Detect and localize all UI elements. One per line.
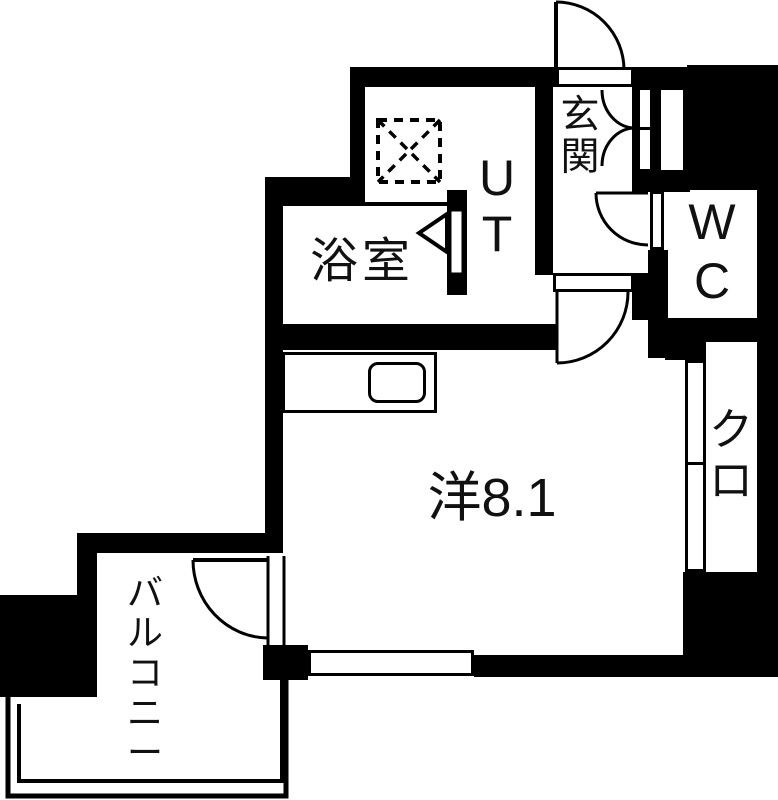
wall-bathroom-top (265, 177, 365, 203)
room-label-entrance: 玄関 (560, 95, 599, 179)
wall-ut-genkan-divider (535, 85, 553, 275)
closet-door-panel-upper (685, 360, 706, 465)
shoe-cabinet-doors-icon (602, 90, 635, 166)
room-label-balcony: バルコニー (127, 573, 163, 773)
balcony-door-icon (193, 556, 284, 645)
shoe-cabinet-tall (658, 87, 686, 173)
room-label-western-room: 洋8.1 (427, 469, 556, 527)
wall-balcony-top (77, 533, 283, 553)
wall-bottomright-block (683, 572, 778, 677)
closet-door-panel-lower (685, 462, 706, 572)
shoe-cabinet-lower (637, 127, 653, 172)
bathroom-door-icon (419, 214, 447, 252)
room-label-utility: UT (479, 150, 515, 262)
kitchen-sink (368, 362, 426, 403)
floorplan: 玄関 UT 浴室 WC 洋8.1 クロ バルコニー (0, 0, 778, 800)
wall-bathroom-right (447, 190, 467, 295)
washing-machine-icon (378, 120, 440, 182)
wall-west (265, 177, 283, 553)
wc-door-leaf (650, 191, 664, 250)
wall-top-left (350, 67, 556, 87)
wall-closet-top (665, 342, 706, 360)
wall-window-left-block (263, 645, 308, 680)
wall-balcony-left (77, 533, 97, 597)
room-label-bathroom: 浴室 (310, 236, 414, 288)
shoe-cabinet-upper (637, 87, 653, 130)
entrance-door-sill (556, 67, 634, 87)
room-label-toilet: WC (688, 193, 735, 311)
wall-room-bottom (474, 655, 686, 677)
wc-door-icon (596, 193, 648, 245)
room-door-sill (553, 273, 634, 292)
wall-mid-band (265, 324, 556, 350)
entrance-door-icon (556, 2, 624, 70)
room-label-closet: クロ (709, 405, 753, 506)
window (308, 650, 474, 676)
wall-balcony-block (0, 595, 97, 697)
room-door-icon (557, 292, 628, 363)
